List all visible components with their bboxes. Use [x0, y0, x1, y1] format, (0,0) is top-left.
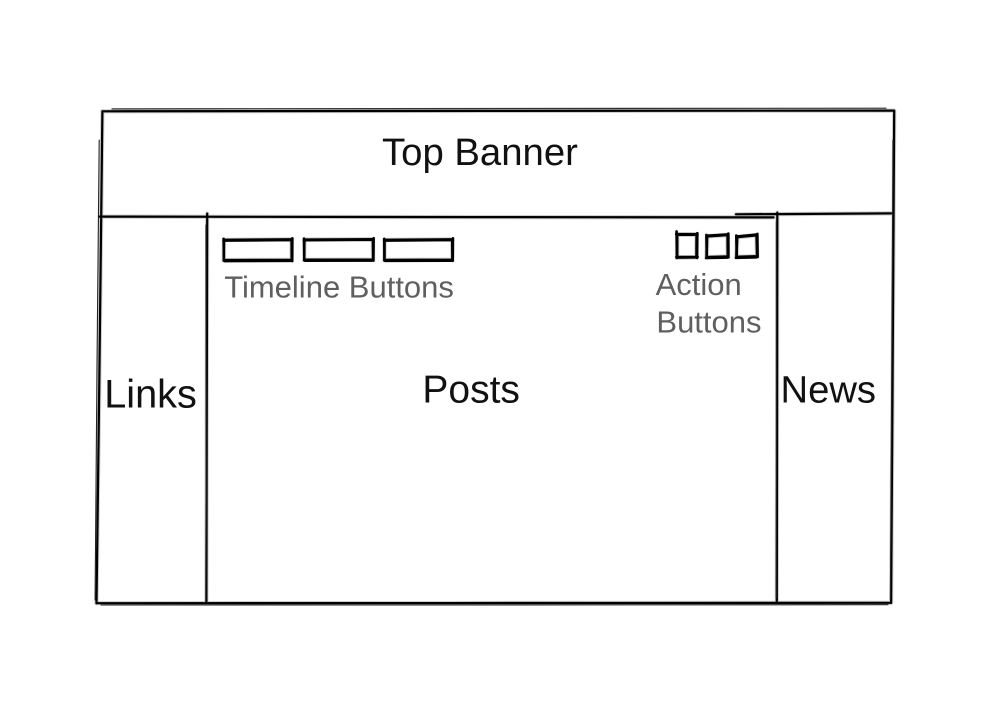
svg-text:Buttons: Buttons — [656, 305, 761, 340]
svg-text:Top Banner: Top Banner — [382, 131, 578, 174]
svg-text:Posts: Posts — [422, 368, 520, 411]
svg-text:Links: Links — [104, 372, 197, 416]
svg-text:News: News — [781, 368, 877, 411]
svg-text:Action: Action — [656, 267, 742, 302]
svg-text:Timeline Buttons: Timeline Buttons — [224, 270, 454, 305]
